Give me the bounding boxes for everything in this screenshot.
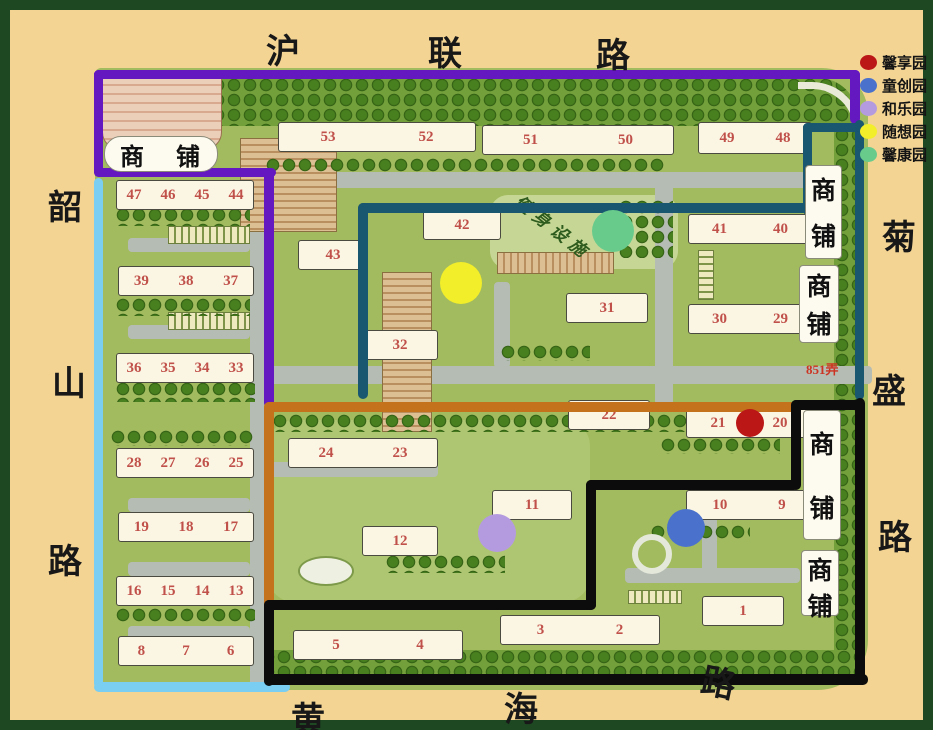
building-number: 42: [455, 217, 470, 234]
road-label-top: 路: [596, 28, 630, 77]
boundary-cyan: [94, 178, 103, 688]
building-number: 18: [178, 519, 193, 536]
lane-851-label: 851弄: [806, 359, 839, 378]
terraced-path: [240, 138, 337, 232]
building-block: 32: [362, 330, 438, 360]
boundary-orange: [264, 402, 274, 608]
building-number: 14: [195, 583, 210, 600]
building-number: 40: [773, 221, 788, 238]
building-number: 20: [773, 415, 788, 432]
parking-strip: [628, 590, 682, 604]
shop-label-char: 商: [807, 551, 832, 587]
tree-row: [385, 555, 505, 573]
tree-row: [265, 158, 665, 172]
building-number: 44: [229, 187, 244, 204]
building-number: 49: [720, 130, 735, 147]
boundary-purple: [94, 70, 103, 176]
building-number: 13: [229, 583, 244, 600]
road-internal: [128, 498, 250, 512]
road-label-left: 韶: [48, 180, 82, 229]
building-block: 393837: [118, 266, 254, 296]
building-block: 54: [293, 630, 463, 660]
legend-label: 馨康园: [882, 144, 927, 165]
building-number: 16: [127, 583, 142, 600]
garden-dot: [736, 409, 764, 437]
building-block: 2423: [288, 438, 438, 468]
building-number: 27: [161, 455, 176, 472]
garden-dot: [440, 262, 482, 304]
road-label-right: 盛: [872, 364, 906, 413]
building-block: 4948: [698, 122, 812, 154]
legend-dot: [860, 55, 877, 70]
building-block: 42: [423, 210, 501, 240]
boundary-black: [586, 480, 596, 610]
tree-row: [500, 345, 590, 361]
road-label-right: 路: [878, 510, 912, 559]
building-block: 31: [566, 293, 648, 323]
building-number: 34: [195, 360, 210, 377]
legend-label: 和乐园: [882, 98, 927, 119]
legend: 馨享园童创园和乐园随想园馨康园: [860, 51, 933, 166]
building-block: 4140: [688, 214, 812, 244]
road-label-left: 山: [52, 356, 86, 405]
legend-dot: [860, 124, 877, 139]
legend-item: 童创园: [860, 74, 933, 97]
shop-label-char: 铺: [176, 137, 202, 172]
building-number: 43: [326, 247, 341, 264]
building-number: 37: [223, 273, 238, 290]
shop-label: 商铺: [801, 550, 839, 616]
road-label-left: 路: [48, 534, 82, 583]
tree-row: [115, 608, 255, 622]
road-label-bottom: 黄: [291, 692, 325, 730]
building-number: 36: [127, 360, 142, 377]
building-number: 5: [332, 637, 340, 654]
building-block: 16151413: [116, 576, 254, 606]
building-number: 32: [393, 337, 408, 354]
building-number: 29: [773, 311, 788, 328]
legend-item: 馨康园: [860, 143, 933, 166]
shop-label-char: 铺: [807, 587, 832, 623]
building-number: 28: [127, 455, 142, 472]
legend-dot: [860, 78, 877, 93]
boundary-black: [264, 674, 868, 685]
parking-strip: [698, 250, 714, 300]
building-number: 53: [321, 129, 336, 146]
building-number: 47: [127, 187, 142, 204]
building-number: 46: [161, 187, 176, 204]
tree-row: [115, 382, 255, 402]
building-number: 4: [416, 637, 424, 654]
building-number: 23: [393, 445, 408, 462]
legend-item: 和乐园: [860, 97, 933, 120]
building-number: 51: [523, 132, 538, 149]
building-number: 41: [712, 221, 727, 238]
tree-row: [660, 438, 780, 454]
shop-label-char: 铺: [809, 489, 834, 525]
road-internal: [128, 562, 250, 576]
road-label-top: 联: [428, 26, 462, 75]
building-block: 1: [702, 596, 784, 626]
shop-label-char: 商: [120, 137, 146, 172]
building-number: 9: [778, 497, 786, 514]
boundary-purple: [94, 70, 860, 79]
building-number: 21: [711, 415, 726, 432]
building-block: 3029: [688, 304, 812, 334]
building-number: 35: [161, 360, 176, 377]
tree-row: [115, 208, 250, 226]
tree-row: [115, 298, 250, 316]
shop-label-char: 商: [811, 171, 836, 207]
tree-band-top: [210, 78, 858, 126]
boundary-black: [791, 400, 863, 410]
boundary-orange: [264, 402, 796, 412]
building-number: 11: [525, 497, 539, 514]
building-number: 3: [537, 622, 545, 639]
building-block: 5150: [482, 125, 674, 155]
building-number: 2: [616, 622, 624, 639]
building-number: 17: [223, 519, 238, 536]
building-block: 36353433: [116, 353, 254, 383]
shop-label-char: 商: [806, 267, 831, 303]
legend-label: 馨享园: [882, 52, 927, 73]
boundary-black: [855, 398, 865, 682]
road-label-bottom: 海: [504, 682, 538, 730]
building-block: 28272625: [116, 448, 254, 478]
road-label-right: 菊: [882, 210, 916, 259]
building-number: 15: [161, 583, 176, 600]
building-number: 7: [182, 643, 190, 660]
boundary-black: [586, 480, 799, 490]
shop-label: 商铺: [803, 410, 841, 540]
building-block: 109: [686, 490, 812, 520]
building-block: 32: [500, 615, 660, 645]
building-number: 52: [419, 129, 434, 146]
building-number: 1: [739, 603, 747, 620]
building-block: 5352: [278, 122, 476, 152]
building-number: 33: [229, 360, 244, 377]
tree-row: [110, 430, 255, 446]
pond: [298, 556, 354, 586]
building-number: 12: [393, 533, 408, 550]
building-number: 38: [178, 273, 193, 290]
building-number: 25: [229, 455, 244, 472]
legend-label: 童创园: [882, 75, 927, 96]
boundary-purple: [850, 70, 860, 124]
shop-label-char: 铺: [806, 305, 831, 341]
shop-label: 商铺: [805, 165, 842, 259]
community-map: 5352515049484746454439383736353433282726…: [0, 0, 933, 730]
roundabout: [632, 534, 672, 574]
building-number: 48: [776, 130, 791, 147]
garden-dot: [667, 509, 705, 547]
garden-dot: [478, 514, 516, 552]
parking-strip: [168, 226, 250, 244]
building-block: 12: [362, 526, 438, 556]
legend-dot: [860, 147, 877, 162]
building-number: 19: [134, 519, 149, 536]
road-internal: [260, 172, 806, 188]
map-paper: 5352515049484746454439383736353433282726…: [10, 10, 923, 720]
boundary-black: [264, 600, 596, 610]
legend-dot: [860, 101, 877, 116]
building-number: 50: [618, 132, 633, 149]
building-number: 26: [195, 455, 210, 472]
shop-label-char: 铺: [811, 217, 836, 253]
building-number: 30: [712, 311, 727, 328]
building-number: 6: [227, 643, 235, 660]
garden-dot: [592, 210, 634, 252]
boundary-teal: [358, 203, 810, 213]
road-internal: [260, 366, 872, 384]
building-block: 47464544: [116, 180, 254, 210]
legend-item: 馨享园: [860, 51, 933, 74]
building-block: 876: [118, 636, 254, 666]
building-number: 31: [600, 300, 615, 317]
legend-label: 随想园: [882, 121, 927, 142]
boundary-black: [791, 400, 801, 490]
building-number: 39: [134, 273, 149, 290]
road-label-top: 沪: [266, 24, 300, 73]
shop-label: 商铺: [799, 265, 839, 343]
shop-label-char: 商: [809, 425, 834, 461]
building-block: 191817: [118, 512, 254, 542]
terraced-path: [497, 252, 614, 274]
boundary-purple: [264, 168, 274, 408]
shop-label: 商铺: [104, 136, 218, 172]
legend-item: 随想园: [860, 120, 933, 143]
building-number: 8: [138, 643, 146, 660]
boundary-cyan: [94, 682, 290, 692]
building-number: 45: [195, 187, 210, 204]
boundary-teal: [358, 203, 368, 399]
building-number: 24: [319, 445, 334, 462]
building-number: 10: [712, 497, 727, 514]
